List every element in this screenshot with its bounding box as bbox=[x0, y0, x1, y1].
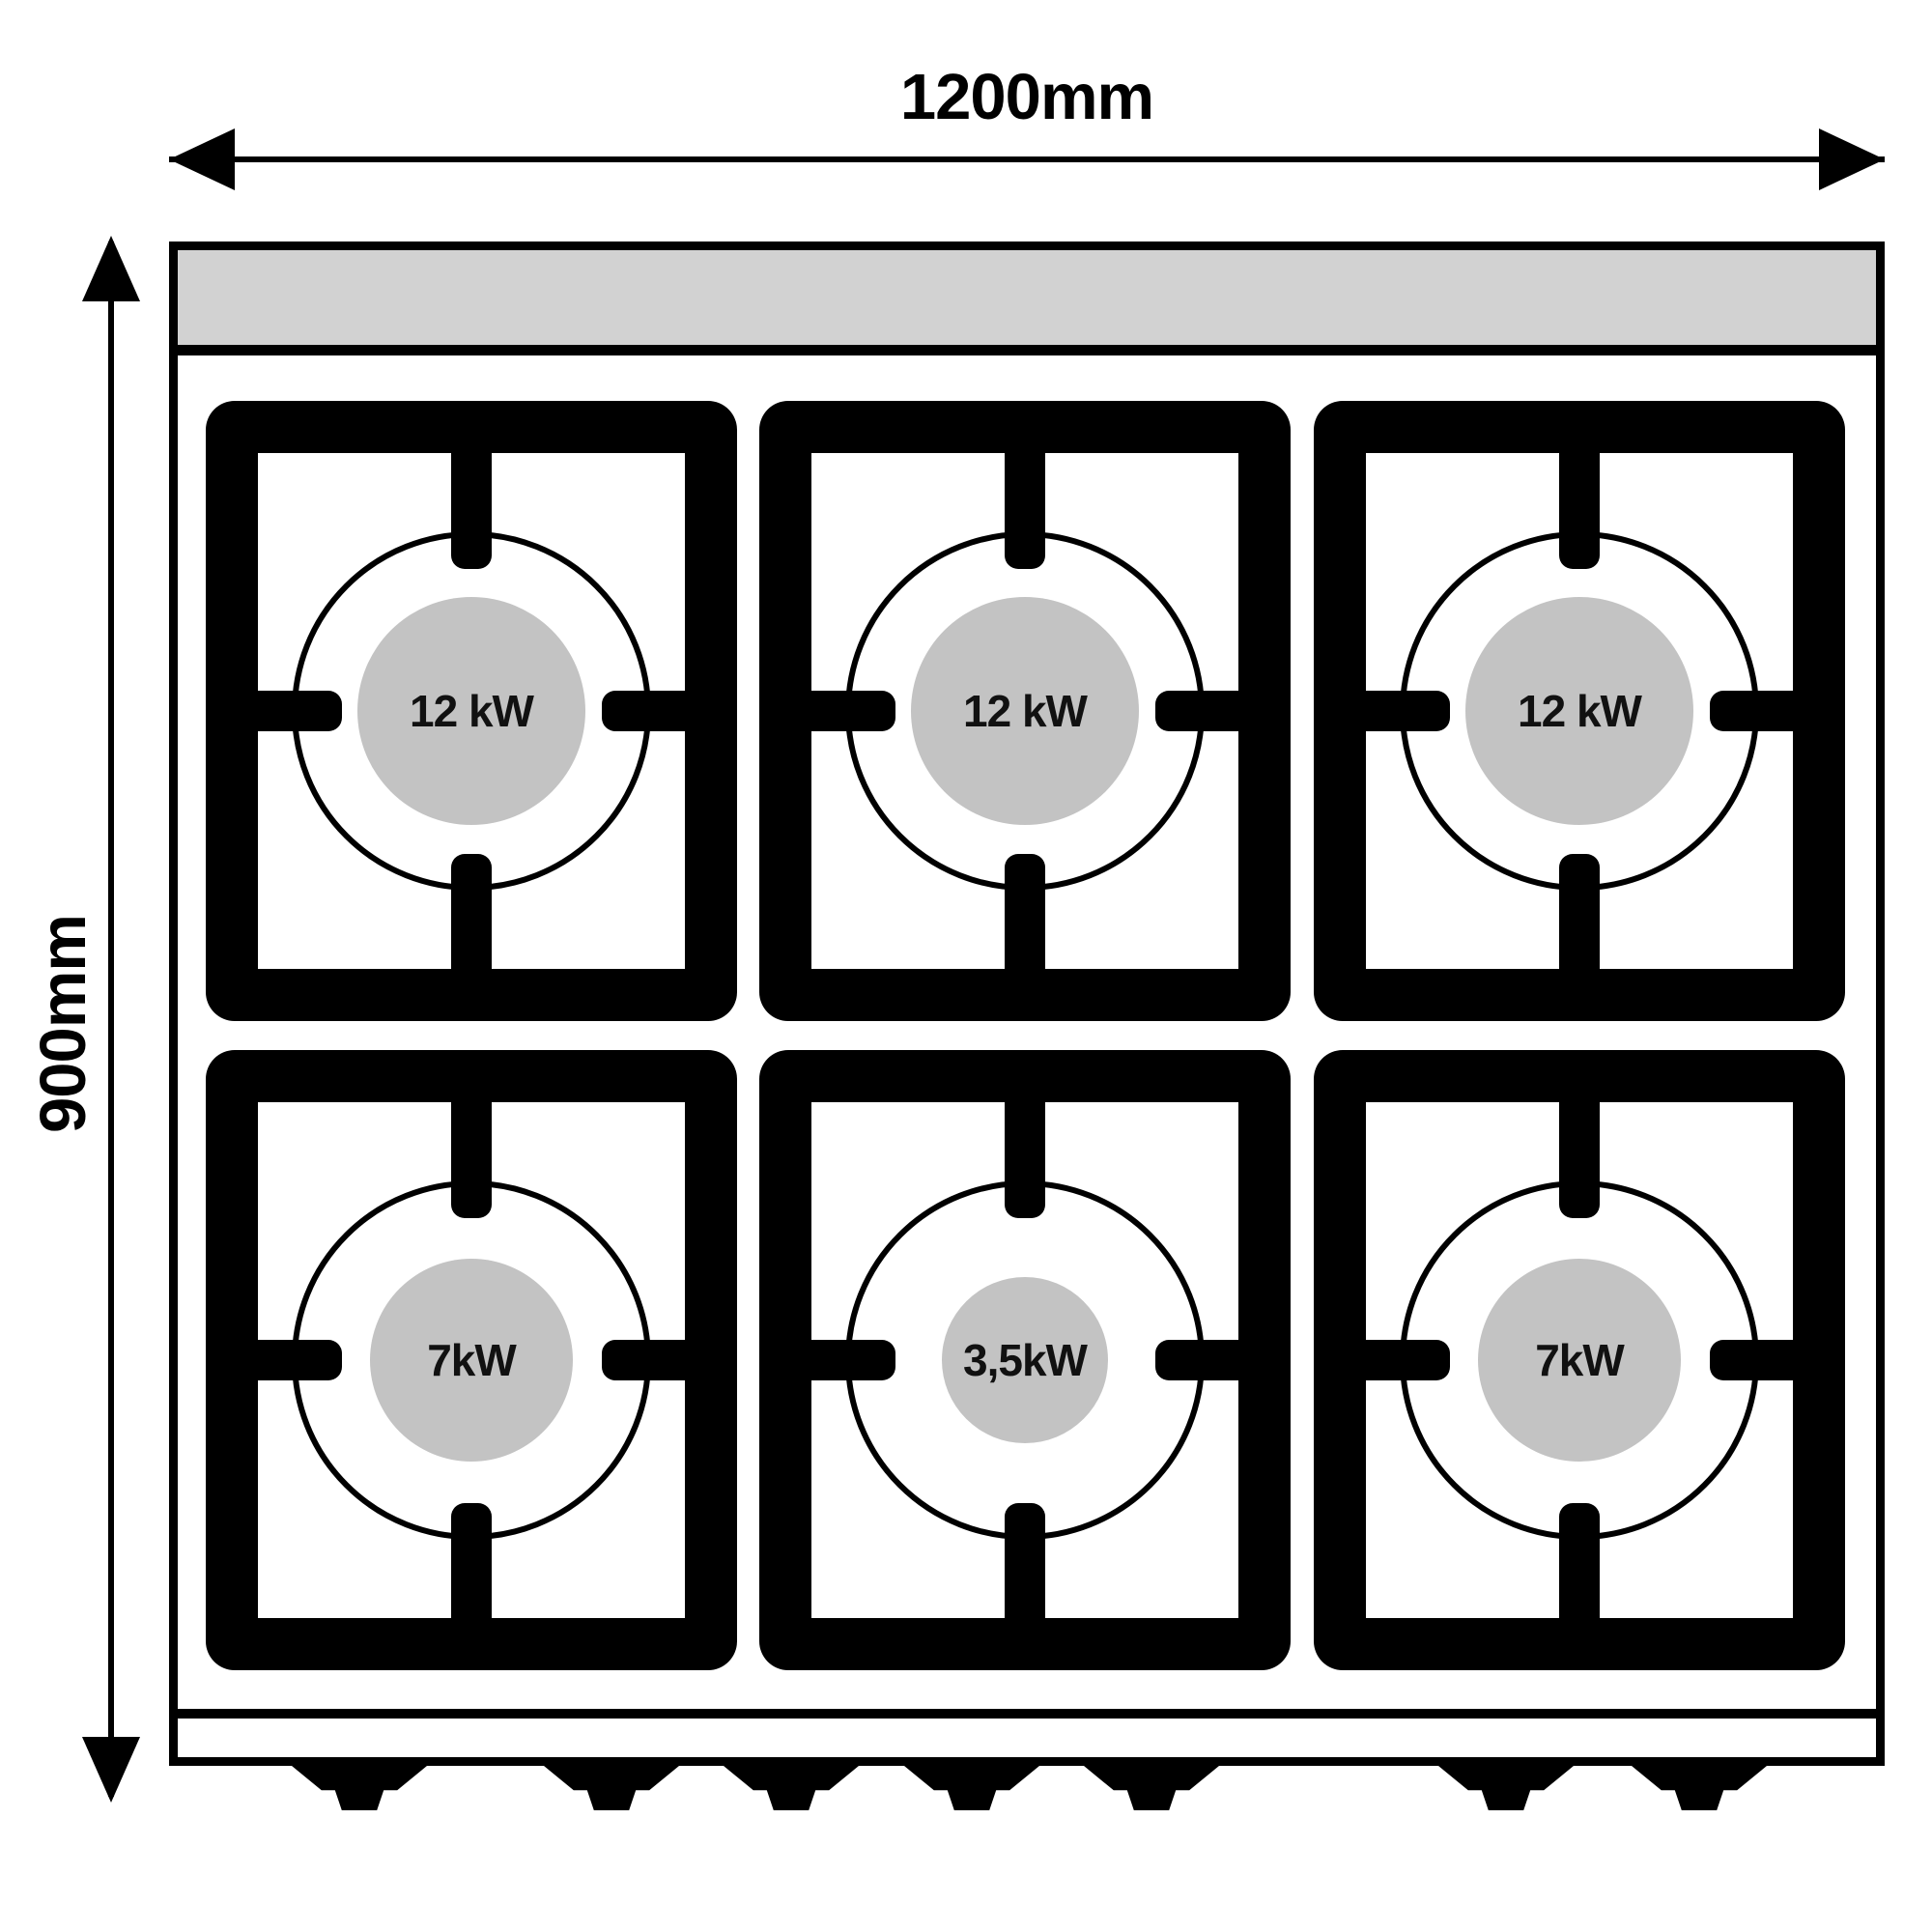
burner-flame-area: 3,5kW bbox=[942, 1277, 1108, 1443]
burner-top-right: 12 kW bbox=[1314, 401, 1845, 1021]
stove-foot bbox=[1438, 1766, 1574, 1810]
bottom-rail-line bbox=[178, 1709, 1876, 1719]
arrow-left-icon bbox=[169, 128, 235, 190]
stove-foot bbox=[1084, 1766, 1219, 1810]
arrow-up-icon bbox=[82, 236, 140, 301]
stove-foot bbox=[904, 1766, 1039, 1810]
depth-dimension-label: 900mm bbox=[30, 879, 98, 1169]
arrow-right-icon bbox=[1819, 128, 1885, 190]
burner-flame-area: 7kW bbox=[1478, 1259, 1681, 1462]
burner-flame-area: 12 kW bbox=[911, 597, 1139, 825]
stove-foot bbox=[544, 1766, 679, 1810]
stove-foot bbox=[1632, 1766, 1767, 1810]
burner-power-label: 12 kW bbox=[1518, 685, 1641, 737]
burner-bottom-right: 7kW bbox=[1314, 1050, 1845, 1670]
burner-flame-area: 12 kW bbox=[357, 597, 585, 825]
burner-flame-area: 7kW bbox=[370, 1259, 573, 1462]
burner-flame-area: 12 kW bbox=[1465, 597, 1693, 825]
burner-power-label: 3,5kW bbox=[963, 1334, 1087, 1386]
width-dimension-label: 1200mm bbox=[169, 60, 1885, 134]
burner-power-label: 7kW bbox=[1535, 1334, 1624, 1386]
arrow-down-icon bbox=[82, 1737, 140, 1803]
stove-foot bbox=[292, 1766, 427, 1810]
burner-top-left: 12 kW bbox=[206, 401, 737, 1021]
burner-power-label: 12 kW bbox=[963, 685, 1087, 737]
width-dimension-line bbox=[169, 156, 1885, 162]
stove-foot bbox=[724, 1766, 859, 1810]
depth-dimension-line bbox=[108, 241, 114, 1797]
burner-bottom-center: 3,5kW bbox=[759, 1050, 1291, 1670]
stove-dimension-diagram: 1200mm 900mm 12 kW 12 kW bbox=[0, 0, 1932, 1932]
burner-power-label: 12 kW bbox=[410, 685, 533, 737]
burner-bottom-left: 7kW bbox=[206, 1050, 737, 1670]
burner-power-label: 7kW bbox=[427, 1334, 516, 1386]
burner-top-center: 12 kW bbox=[759, 401, 1291, 1021]
panel-divider-line bbox=[178, 345, 1876, 355]
control-panel-band bbox=[178, 250, 1876, 345]
